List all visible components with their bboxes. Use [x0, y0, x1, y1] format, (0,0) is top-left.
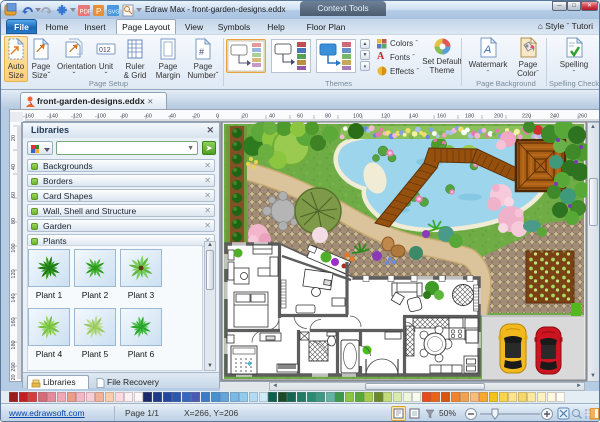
svg-text:80: 80: [325, 114, 331, 120]
svg-text:180: 180: [11, 340, 17, 349]
svg-text:220: 220: [522, 114, 531, 120]
svg-text:220: 220: [11, 374, 17, 380]
svg-text:40: 40: [269, 114, 275, 120]
svg-text:60: 60: [297, 114, 303, 120]
svg-text:140: 140: [11, 293, 17, 302]
svg-text:20: 20: [11, 135, 17, 141]
svg-text:-100: -100: [95, 114, 106, 120]
svg-text:100: 100: [11, 243, 17, 252]
svg-text:-60: -60: [144, 114, 152, 120]
svg-text:012: 012: [99, 47, 111, 54]
svg-text:0: 0: [216, 114, 219, 120]
svg-text:40: 40: [11, 164, 17, 170]
svg-text:-160: -160: [23, 114, 34, 120]
svg-text:-20: -20: [192, 114, 200, 120]
svg-text:60: 60: [11, 192, 17, 198]
svg-text:#: #: [199, 47, 204, 57]
svg-text:160: 160: [437, 114, 446, 120]
svg-text:P: P: [96, 7, 101, 16]
svg-text:-140: -140: [47, 114, 58, 120]
svg-text:140: 140: [409, 114, 418, 120]
svg-text:240: 240: [550, 114, 559, 120]
svg-text:PDF: PDF: [80, 10, 92, 16]
svg-text:160: 160: [11, 317, 17, 326]
svg-text:200: 200: [11, 362, 17, 371]
svg-text:-80: -80: [120, 114, 128, 120]
svg-text:-40: -40: [168, 114, 176, 120]
svg-text:80: 80: [11, 218, 17, 224]
svg-text:20: 20: [242, 114, 248, 120]
svg-text:120: 120: [11, 269, 17, 278]
svg-text:260: 260: [578, 114, 587, 120]
svg-text:A: A: [483, 44, 491, 56]
svg-text:180: 180: [465, 114, 474, 120]
svg-text:-120: -120: [71, 114, 82, 120]
svg-text:100: 100: [353, 114, 362, 120]
svg-text:SVG: SVG: [108, 10, 120, 16]
svg-text:200: 200: [494, 114, 503, 120]
svg-text:120: 120: [381, 114, 390, 120]
